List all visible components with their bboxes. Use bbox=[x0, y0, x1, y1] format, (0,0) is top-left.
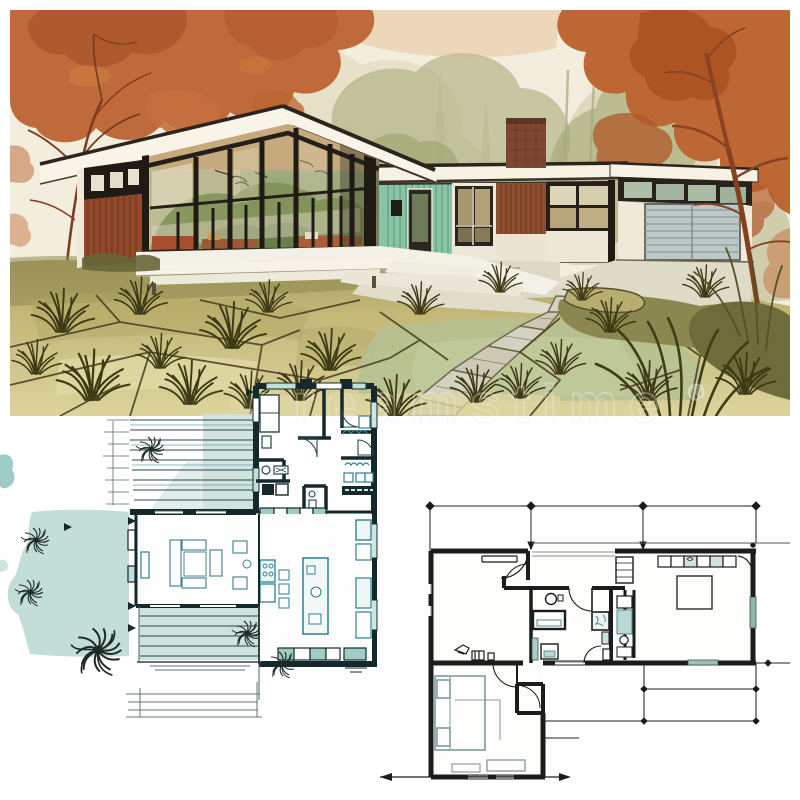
svg-text:®: ® bbox=[688, 380, 704, 405]
